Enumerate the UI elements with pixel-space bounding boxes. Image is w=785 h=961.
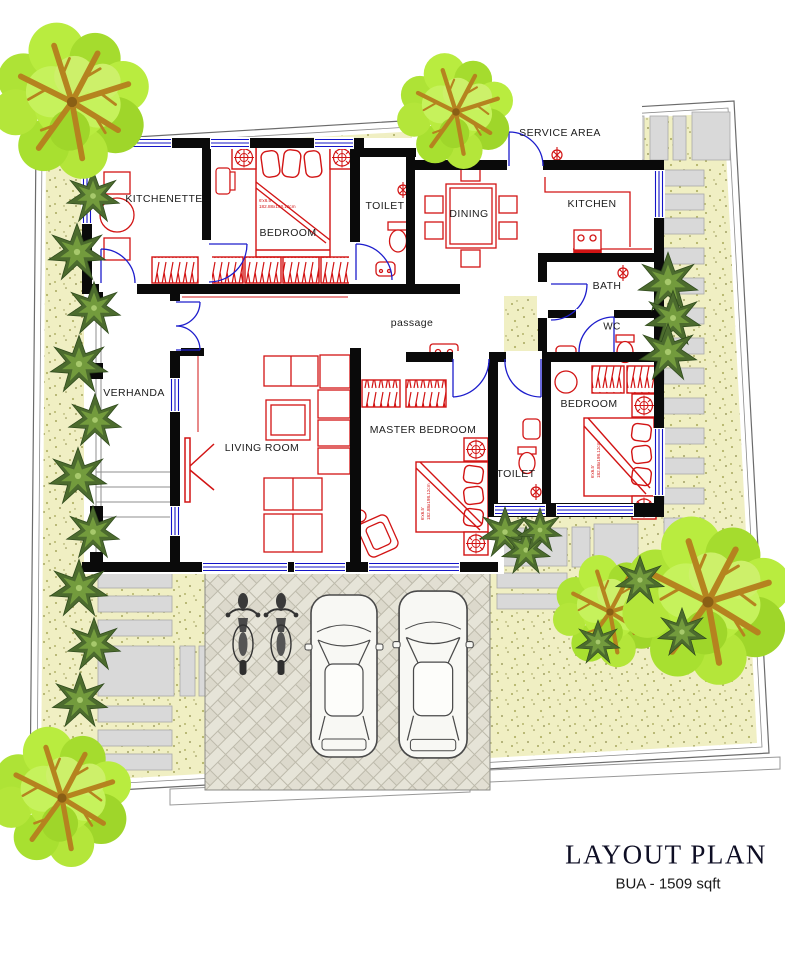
room-label-bedroom-top: BEDROOM <box>259 227 316 239</box>
plan-subtitle: BUA - 1509 sqft <box>615 876 720 893</box>
car-icon <box>393 591 473 758</box>
room-label-bath: BATH <box>593 280 622 292</box>
room-label-kitchenette: KITCHENETTE <box>125 193 202 205</box>
room-label-bedroom-right: BEDROOM <box>560 398 617 410</box>
room-label-kitchen: KITCHEN <box>568 198 617 210</box>
bed-icon <box>584 418 654 496</box>
desk-icon <box>216 168 235 194</box>
room-label-service-area: SERVICE AREA <box>519 127 601 139</box>
room-label-toilet-bottom: TOILET <box>497 468 536 480</box>
svg-text:182.88x198.12cm: 182.88x198.12cm <box>596 441 601 478</box>
room-label-toilet-top: TOILET <box>366 200 405 212</box>
site-plan-drawing: 6'x6.5' 182.88x198.12cm 6'x6.5' 182.88x1… <box>0 0 785 961</box>
layout-plan-canvas: 6'x6.5' 182.88x198.12cm 6'x6.5' 182.88x1… <box>0 0 785 961</box>
room-label-dining: DINING <box>449 208 488 220</box>
room-label-passage: passage <box>391 317 434 329</box>
svg-text:182.88x198.12cm: 182.88x198.12cm <box>426 483 431 520</box>
bedside-table-icon <box>232 146 256 169</box>
svg-text:6'x6.5': 6'x6.5' <box>259 198 272 203</box>
room-label-living-room: LIVING ROOM <box>225 442 299 454</box>
bedside-table-icon <box>464 438 488 461</box>
svg-text:6'x6.5': 6'x6.5' <box>420 507 425 520</box>
svg-text:182.88x198.12cm: 182.88x198.12cm <box>259 204 296 209</box>
bedside-table-icon <box>632 394 656 417</box>
room-label-master-bedroom: MASTER BEDROOM <box>370 424 477 436</box>
svg-text:6'x6.5': 6'x6.5' <box>590 465 595 478</box>
stool-icon <box>555 371 577 393</box>
car-icon <box>305 595 383 757</box>
plan-title: LAYOUT PLAN <box>565 840 767 871</box>
room-label-verhanda: VERHANDA <box>103 387 165 399</box>
room-label-wc: WC <box>603 322 620 333</box>
